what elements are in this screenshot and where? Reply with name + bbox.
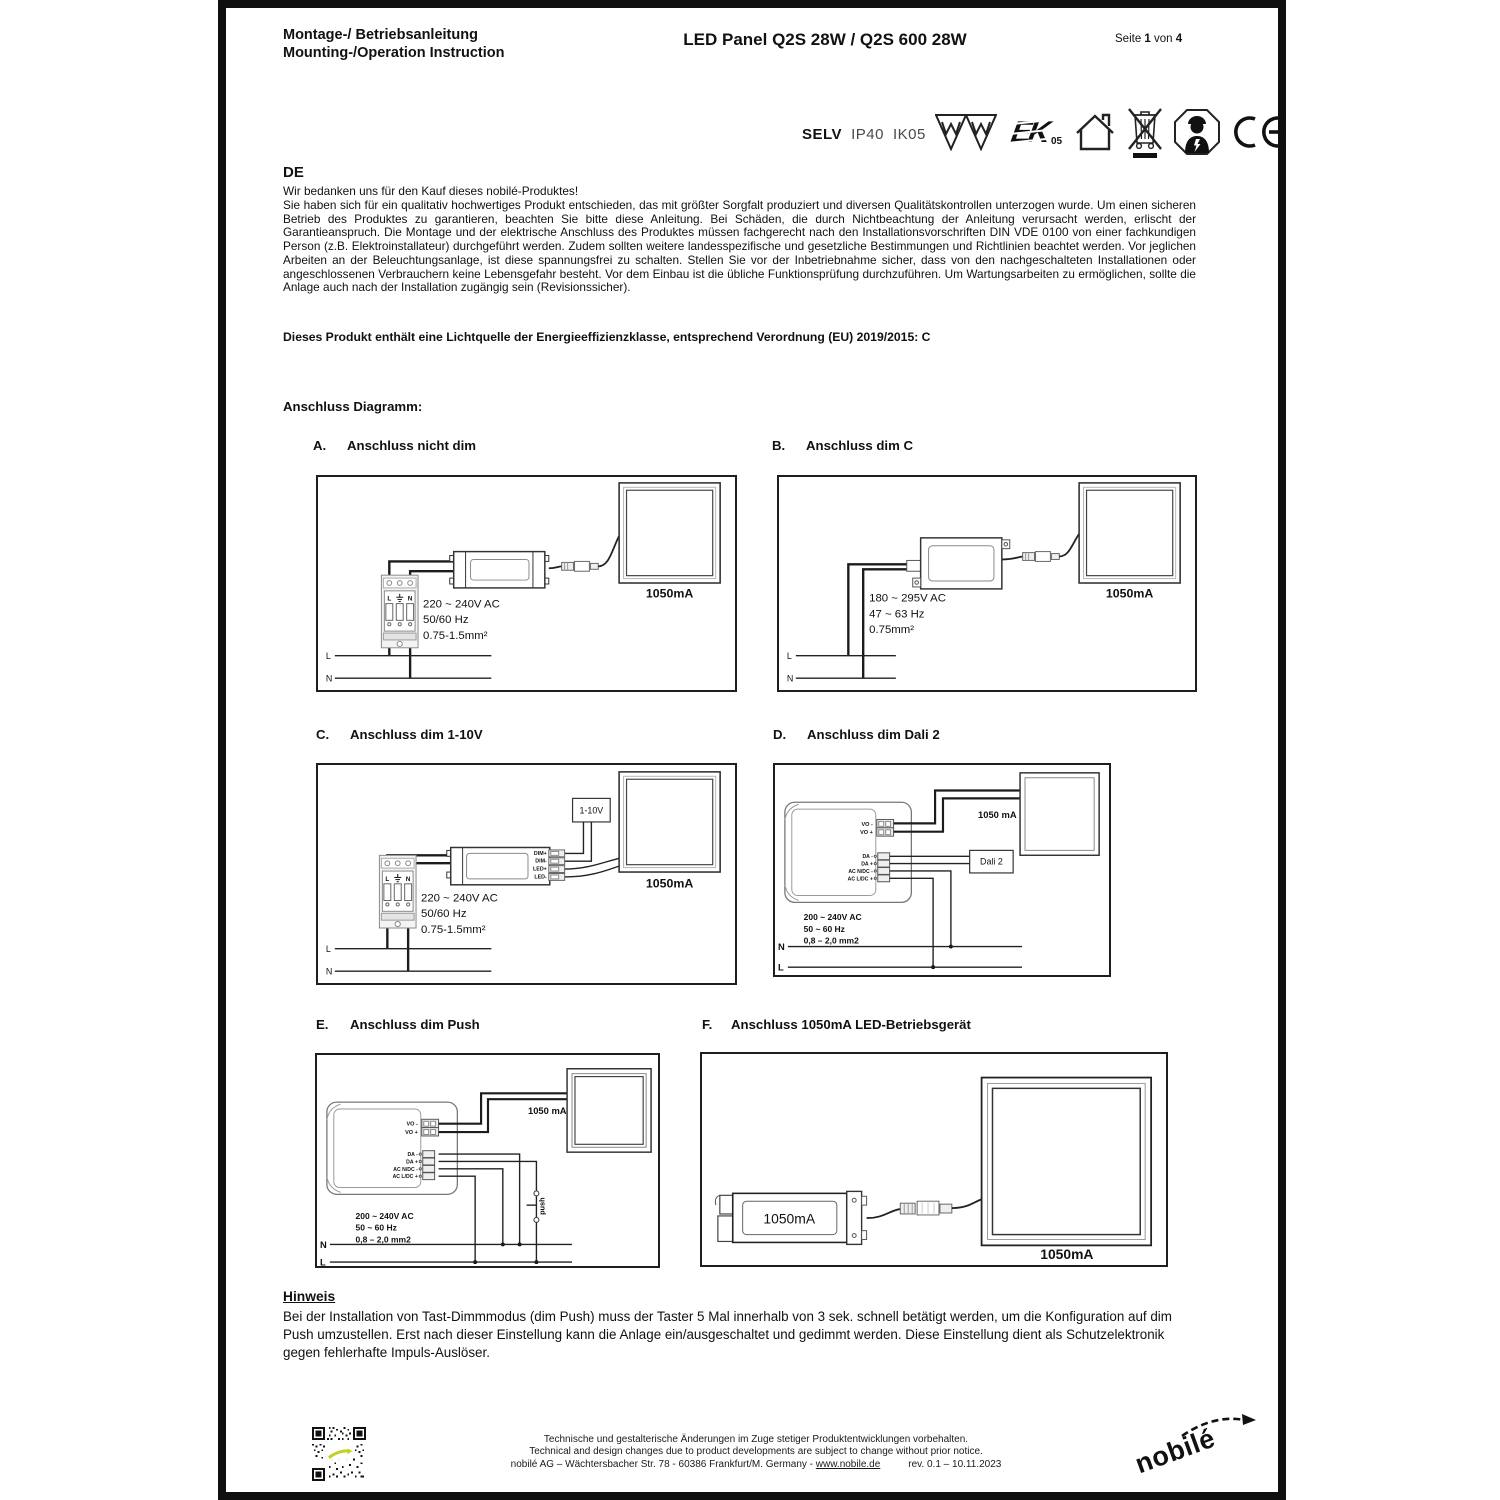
terminal-n-label: N [406, 876, 411, 883]
section-b-letter: B. [772, 438, 806, 453]
diagram-b: 1050mA 180 ~ 295V AC 47 ~ 63 Hz 0.75mm² … [777, 475, 1197, 692]
driver-terminal-label: DIM- [535, 859, 547, 865]
language-heading: DE [283, 164, 304, 181]
supply-wire: 0.75-1.5mm² [421, 924, 486, 936]
section-e-heading: E.Anschluss dim Push [316, 1017, 480, 1032]
section-c-letter: C. [316, 727, 350, 742]
terminal-l-label: L [387, 596, 391, 603]
logo-text: nobilé [1131, 1423, 1219, 1480]
section-c-heading: C.Anschluss dim 1-10V [316, 727, 483, 742]
supply-freq: 50 ~ 60 Hz [356, 1223, 397, 1233]
diagram-f: 1050mA 1050mA [700, 1052, 1168, 1267]
led-panel [1079, 483, 1180, 583]
driver-terminal-label: DA - [407, 1152, 418, 1158]
footer-notes: Technische und gestalterische Änderungen… [466, 1434, 1046, 1471]
section-f-letter: F. [702, 1017, 731, 1032]
hinweis-body: Bei der Installation von Tast-Dimmmodus … [283, 1308, 1173, 1362]
ce-mark-icon [1230, 113, 1290, 156]
panel-current-label: 1050 mA [528, 1106, 567, 1116]
section-b-title: Anschluss dim C [806, 438, 913, 453]
panel-current-label: 1050mA [1040, 1246, 1093, 1262]
footer-company-line: nobilé AG – Wächtersbacher Str. 78 - 603… [466, 1459, 1046, 1471]
driver-terminal-label: AC L/DC + [848, 876, 873, 882]
supply-volts: 200 ~ 240V AC [804, 912, 862, 922]
line-l-label: L [326, 944, 331, 954]
led-driver: DIM+ DIM- LED+ LED- [447, 847, 565, 884]
website-link[interactable]: www.nobile.de [816, 1459, 880, 1470]
section-f-title: Anschluss 1050mA LED-Betriebsgerät [731, 1017, 971, 1032]
page-indicator-prefix: Seite [1115, 33, 1144, 45]
diagram-a: L N [316, 475, 737, 692]
electrician-icon [1173, 108, 1221, 161]
line-n-label: N [778, 942, 785, 952]
doc-title-de: Montage-/ Betriebsanleitung [283, 26, 505, 44]
supply-volts: 220 ~ 240V AC [423, 599, 500, 611]
connector-plug [900, 1201, 952, 1215]
dali-unit-box: Dali 2 [970, 850, 1013, 873]
line-n-label: N [787, 674, 793, 684]
supply-volts: 200 ~ 240V AC [356, 1211, 414, 1221]
page-title: LED Panel Q2S 28W / Q2S 600 28W [625, 30, 1025, 50]
doc-title-en: Mounting-/Operation Instruction [283, 44, 505, 62]
section-c-title: Anschluss dim 1-10V [350, 727, 483, 742]
line-l-label: L [326, 651, 331, 661]
driver-terminal-label: DIM+ [534, 851, 547, 857]
panel-current-label: 1050 mA [978, 810, 1017, 820]
dim-unit-box: 1-10V [573, 798, 611, 822]
push-label: push [537, 1197, 546, 1215]
line-l-label: L [320, 1258, 326, 1266]
led-driver [450, 552, 549, 588]
led-panel [1020, 773, 1099, 855]
push-button-symbol: push [527, 1191, 547, 1222]
driver-terminal-label: DA - [862, 854, 873, 860]
doc-title: Montage-/ Betriebsanleitung Mounting-/Op… [283, 26, 505, 62]
supply-freq: 50/60 Hz [421, 908, 467, 920]
brand-logo: nobilé [1124, 1410, 1274, 1495]
footer-revision: rev. 0.1 – 10.11.2023 [908, 1459, 1001, 1470]
indoor-use-icon [1073, 111, 1117, 158]
panel-current-label: 1050mA [646, 877, 694, 891]
push-driver: VO - VO + DA - DA + AC N/DC - AC L/DC + [327, 1102, 457, 1194]
supply-wire: 0,8 – 2,0 mm2 [804, 936, 859, 946]
document-page: Montage-/ Betriebsanleitung Mounting-/Op… [218, 0, 1286, 1500]
driver-terminal-label: AC N/DC - [848, 869, 873, 875]
section-e-letter: E. [316, 1017, 350, 1032]
page-indicator: Seite 1 von 4 [1115, 33, 1182, 45]
section-a-title: Anschluss nicht dim [347, 438, 476, 453]
driver-terminal-label: VO + [405, 1130, 418, 1136]
transformer-triangle-icon [935, 113, 997, 156]
panel-current-label: 1050mA [646, 587, 694, 601]
page-total: 4 [1176, 33, 1182, 45]
selv-label: SELV [802, 126, 842, 143]
diagram-c: 1-10V L N [316, 763, 737, 985]
ip-rating: IP40 [851, 126, 884, 143]
driver-terminal-label: LED+ [533, 867, 547, 873]
page-indicator-middle: von [1151, 33, 1176, 45]
line-n-label: N [320, 1240, 327, 1250]
intro-greeting: Wir bedanken uns für den Kauf dieses nob… [283, 184, 578, 198]
terminal-block: L N [381, 575, 418, 648]
section-d-letter: D. [773, 727, 807, 742]
panel-current-label: 1050mA [1106, 587, 1154, 601]
driver-terminal-label: DA + [406, 1159, 418, 1165]
led-panel [982, 1078, 1152, 1246]
supply-volts: 220 ~ 240V AC [421, 893, 498, 905]
driver-terminal-label: VO - [861, 822, 873, 828]
hinweis-title: Hinweis [283, 1289, 335, 1304]
dali-driver: VO - VO + DA - DA + AC N/DC - AC L/DC + [785, 802, 911, 902]
driver-terminal-label: LED- [534, 874, 547, 880]
section-f-heading: F.Anschluss 1050mA LED-Betriebsgerät [702, 1017, 971, 1032]
driver-terminal-label: AC L/DC + [393, 1174, 418, 1180]
footer-note-en: Technical and design changes due to prod… [466, 1446, 1046, 1458]
led-panel [619, 483, 720, 583]
terminal-l-label: L [385, 876, 389, 883]
led-panel [619, 772, 720, 872]
supply-freq: 50 ~ 60 Hz [804, 924, 845, 934]
terminal-block: L N [379, 855, 416, 928]
section-a-heading: A.Anschluss nicht dim [313, 438, 476, 453]
section-b-heading: B.Anschluss dim C [772, 438, 913, 453]
section-d-title: Anschluss dim Dali 2 [807, 727, 940, 742]
weee-bin-icon [1126, 105, 1164, 164]
supply-wire: 0,8 – 2,0 mm2 [356, 1234, 412, 1244]
supply-volts: 180 ~ 295V AC [869, 593, 946, 605]
supply-wire: 0.75mm² [869, 624, 914, 636]
driver-terminal-label: AC N/DC - [393, 1167, 418, 1173]
driver-terminal-label: DA + [861, 862, 873, 868]
supply-freq: 50/60 Hz [423, 614, 469, 626]
enec-mark-icon: EK 05 [1006, 110, 1064, 159]
supply-freq: 47 ~ 63 Hz [869, 608, 925, 620]
footer-note-de: Technische und gestalterische Änderungen… [466, 1434, 1046, 1446]
supply-wire: 0.75-1.5mm² [423, 630, 488, 642]
connector-plug [562, 561, 599, 571]
led-panel [567, 1069, 651, 1152]
intro-body: Sie haben sich für ein qualitativ hochwe… [283, 199, 1196, 295]
connector-plug [1023, 552, 1060, 562]
line-l-label: L [778, 963, 784, 973]
line-n-label: N [326, 967, 332, 977]
terminal-n-label: N [408, 596, 413, 603]
dali-unit-label: Dali 2 [980, 857, 1003, 867]
line-n-label: N [326, 674, 332, 684]
led-driver [907, 538, 1010, 589]
diagram-e: VO - VO + DA - DA + AC N/DC - AC L/DC + [315, 1053, 660, 1268]
line-l-label: L [787, 651, 792, 661]
section-e-title: Anschluss dim Push [350, 1017, 480, 1032]
qr-code [312, 1427, 366, 1481]
driver-current-label: 1050mA [763, 1210, 815, 1226]
enec-mark-number: 05 [1051, 136, 1063, 147]
footer-company: nobilé AG – Wächtersbacher Str. 78 - 603… [511, 1459, 816, 1470]
driver-terminal-label: VO - [406, 1122, 418, 1128]
section-a-letter: A. [313, 438, 347, 453]
led-driver: 1050mA [715, 1191, 866, 1244]
diagram-section-heading: Anschluss Diagramm: [283, 399, 422, 414]
dim-unit-label: 1-10V [579, 806, 603, 816]
diagram-d: VO - VO + DA - DA + AC N/DC - AC L/DC + [773, 763, 1111, 977]
driver-terminal-label: VO + [860, 830, 873, 836]
section-d-heading: D.Anschluss dim Dali 2 [773, 727, 940, 742]
energy-class-note: Dieses Produkt enthält eine Lichtquelle … [283, 330, 1196, 344]
ik-rating: IK05 [893, 126, 926, 143]
certification-row: SELV IP40 IK05 EK 05 [802, 102, 1290, 166]
